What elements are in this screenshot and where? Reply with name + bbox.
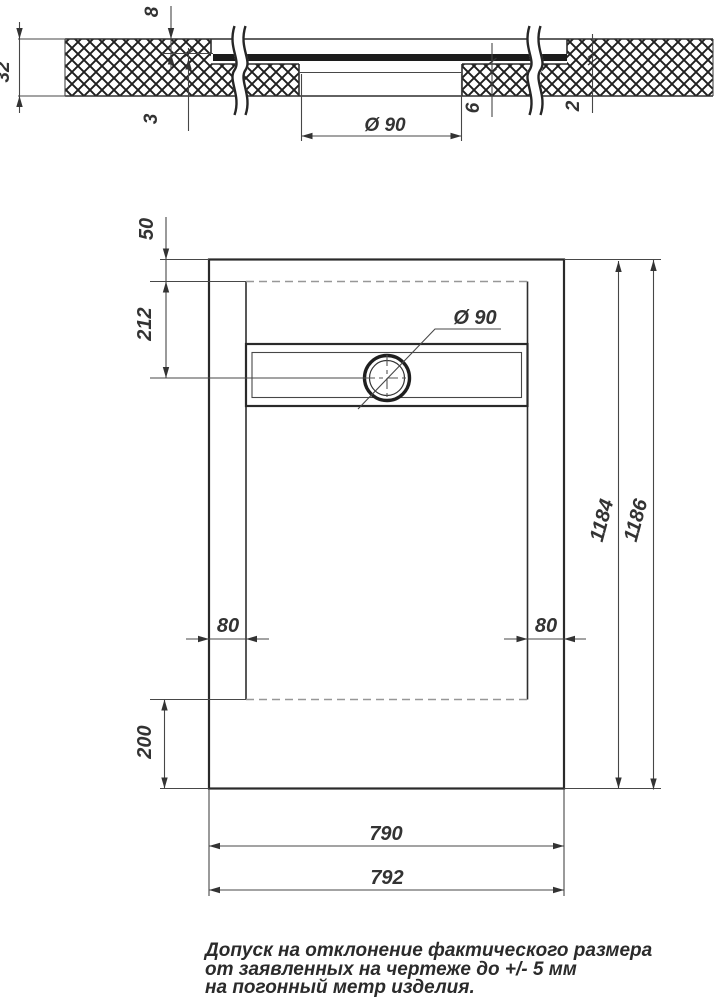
- section-hatch-right-block: [567, 39, 713, 96]
- dim-8-label: 8: [142, 6, 163, 17]
- section-view: 32 8 3 6 2: [0, 6, 713, 141]
- dim-792-label: 792: [370, 867, 403, 889]
- tolerance-note-line1: Допуск на отклонение фактического размер…: [203, 940, 653, 961]
- section-hatch-under-cover-left: [211, 64, 299, 96]
- dim-790: 790: [209, 823, 564, 849]
- dim-80-right: 80: [504, 615, 586, 642]
- plan-extension-lines: [150, 260, 661, 897]
- technical-drawing: 32 8 3 6 2: [0, 0, 717, 1000]
- dim-80-right-label: 80: [535, 615, 557, 637]
- dim-50-label: 50: [136, 218, 158, 240]
- tolerance-note: Допуск на отклонение фактического размер…: [203, 940, 653, 998]
- dim-32: 32: [0, 22, 66, 113]
- dim-80-left: 80: [186, 615, 269, 642]
- dim-drain-diameter-plan-label: Ø 90: [453, 307, 496, 329]
- dim-50-212: 50 212: [134, 217, 169, 378]
- dim-80-left-label: 80: [217, 615, 239, 637]
- section-hatch-under-cover-right: [462, 64, 567, 96]
- dim-790-label: 790: [369, 823, 402, 845]
- dim-1184: 1184: [586, 261, 622, 789]
- dim-drain-diameter-section-label: Ø 90: [364, 115, 406, 136]
- dim-2-label: 2: [563, 100, 584, 112]
- dim-32-label: 32: [0, 61, 14, 83]
- plan-view: Ø 90 50 212 1184: [134, 217, 661, 896]
- dim-200: 200: [134, 700, 168, 789]
- drain-cover-plate-section: [213, 54, 567, 61]
- dim-792: 792: [209, 867, 564, 893]
- dim-3-label: 3: [141, 113, 162, 124]
- tray-outer-outline: [209, 260, 564, 789]
- dim-200-label: 200: [134, 725, 156, 759]
- dim-drain-diameter-section: Ø 90: [302, 74, 462, 141]
- dim-1186-label: 1186: [620, 496, 653, 544]
- dim-6-label: 6: [463, 102, 484, 113]
- tolerance-note-line3: на погонный метр изделия.: [205, 977, 475, 998]
- dim-1186: 1186: [620, 260, 657, 790]
- dim-1184-label: 1184: [586, 497, 618, 544]
- dim-212-label: 212: [134, 307, 156, 341]
